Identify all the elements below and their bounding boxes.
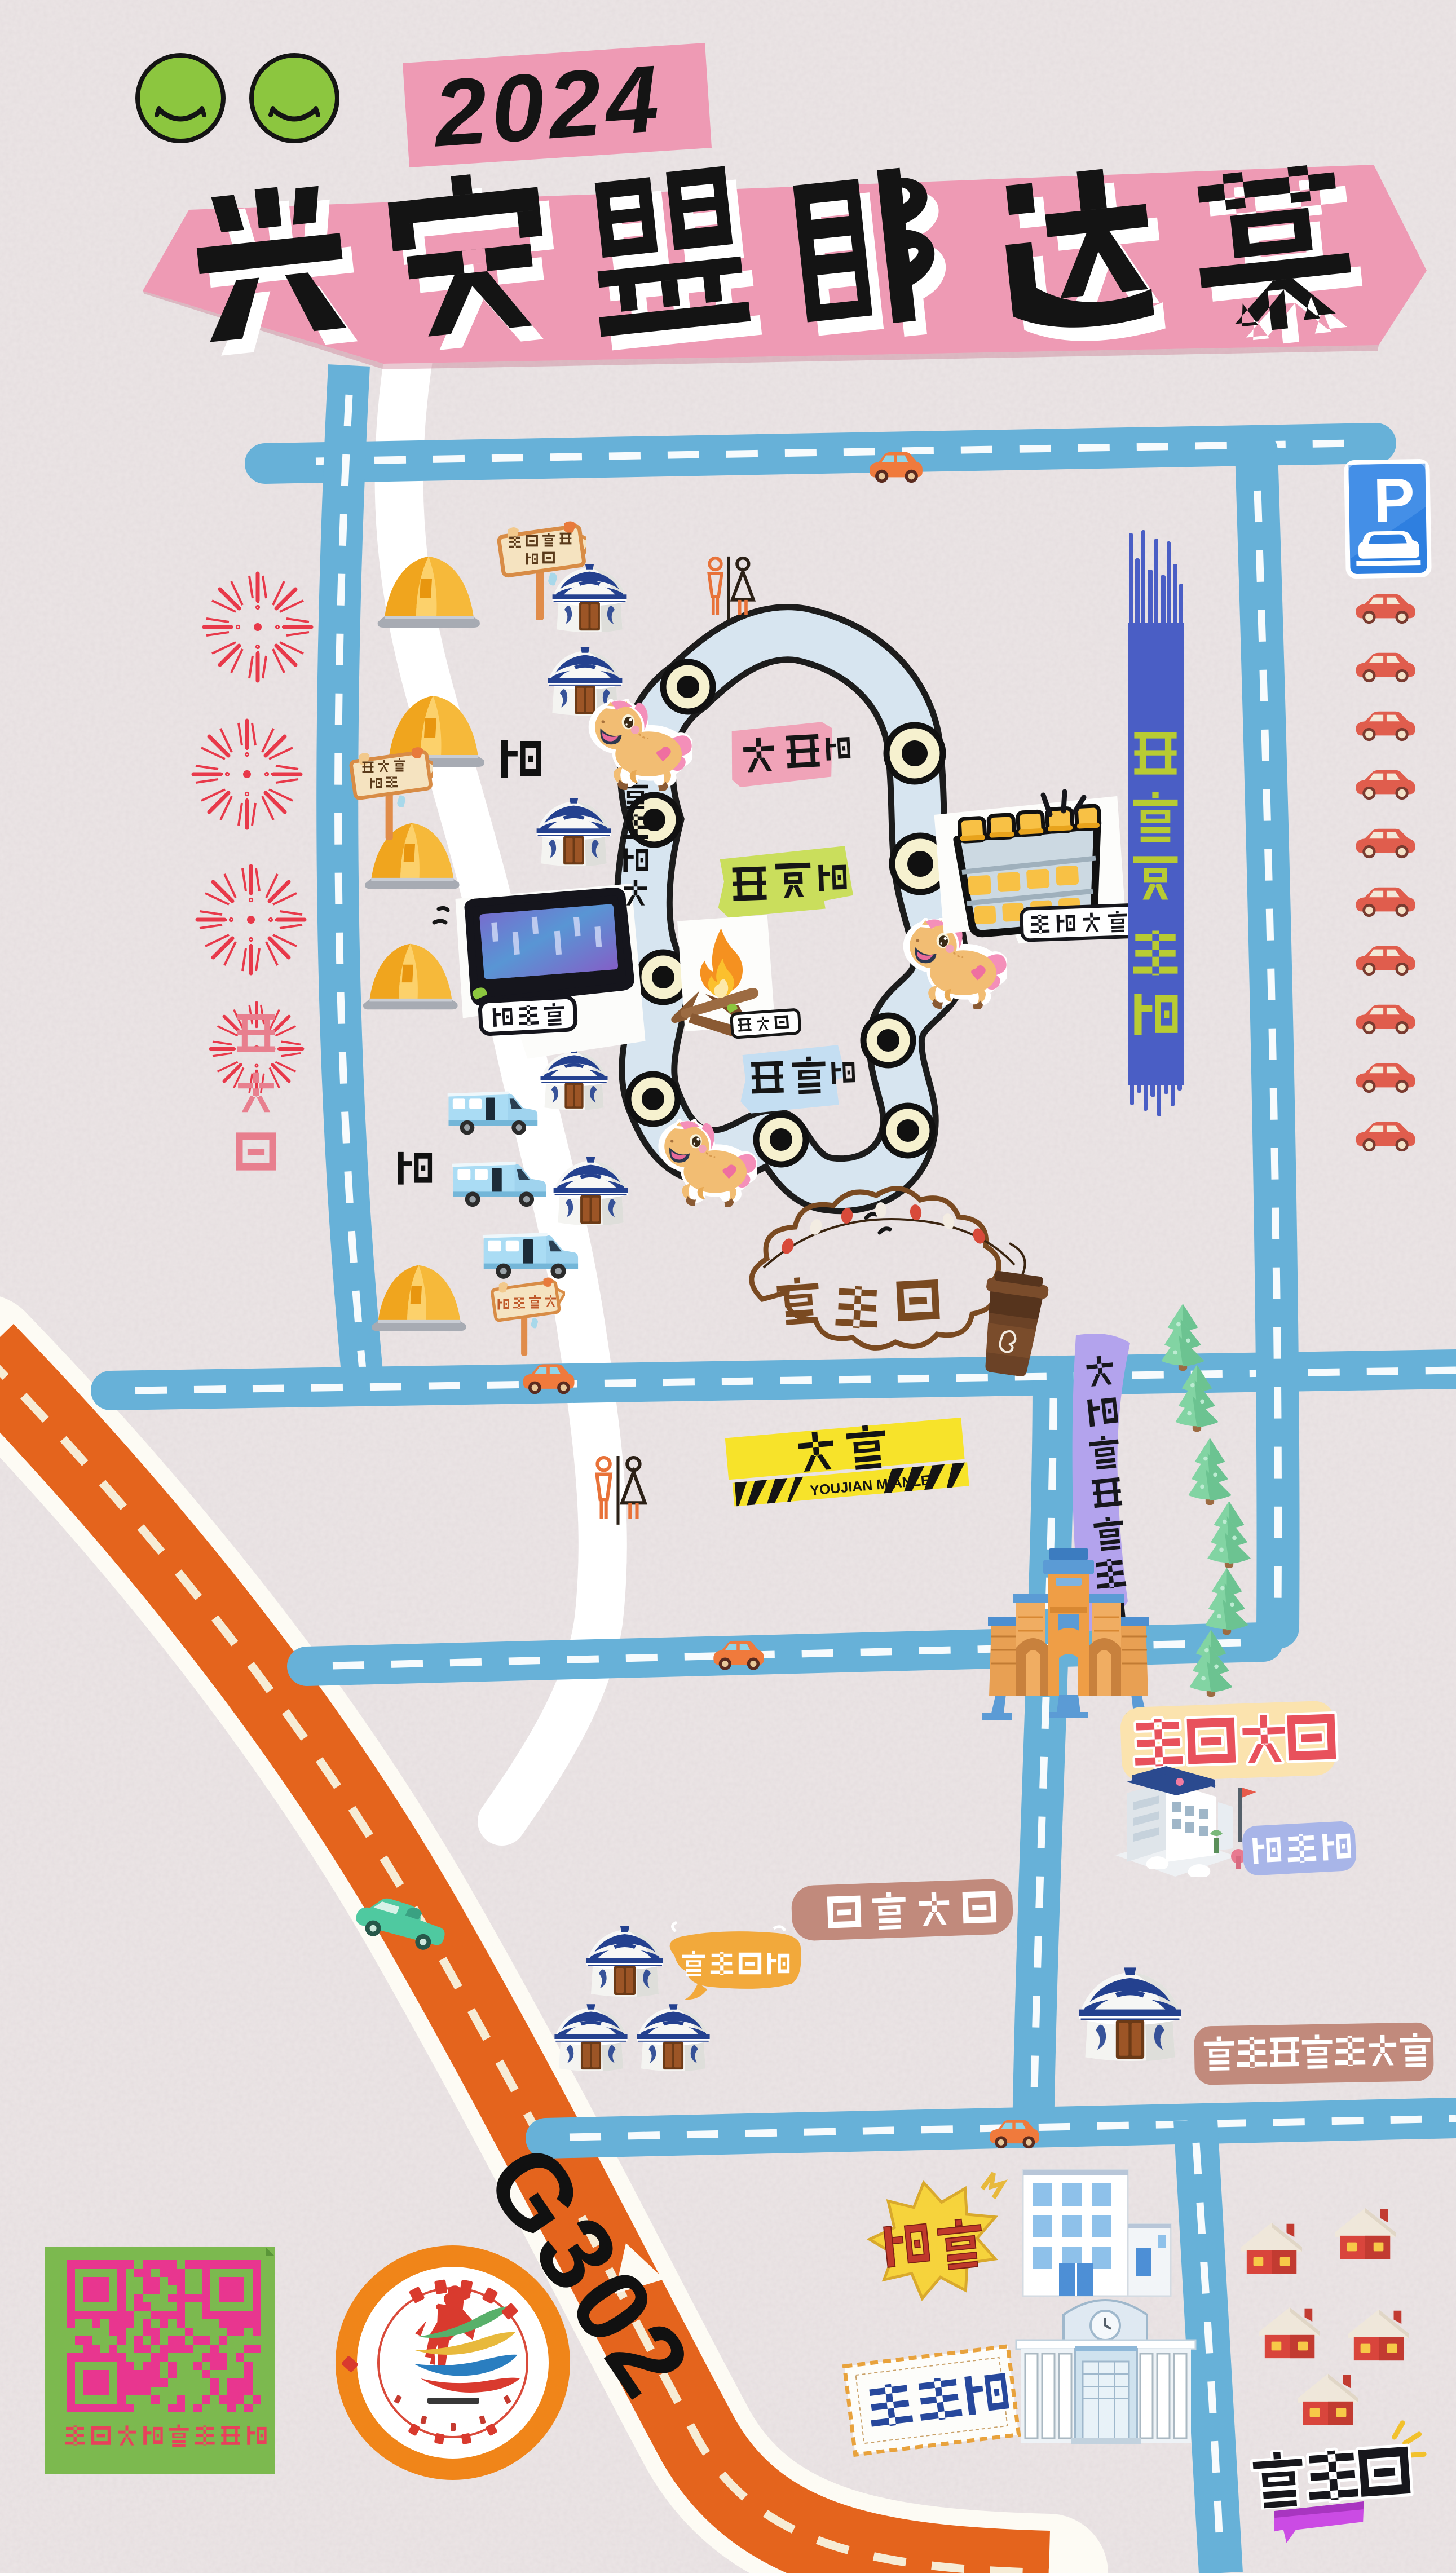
svg-text:2024: 2024 [429,45,667,167]
svg-text:P: P [1373,465,1415,535]
